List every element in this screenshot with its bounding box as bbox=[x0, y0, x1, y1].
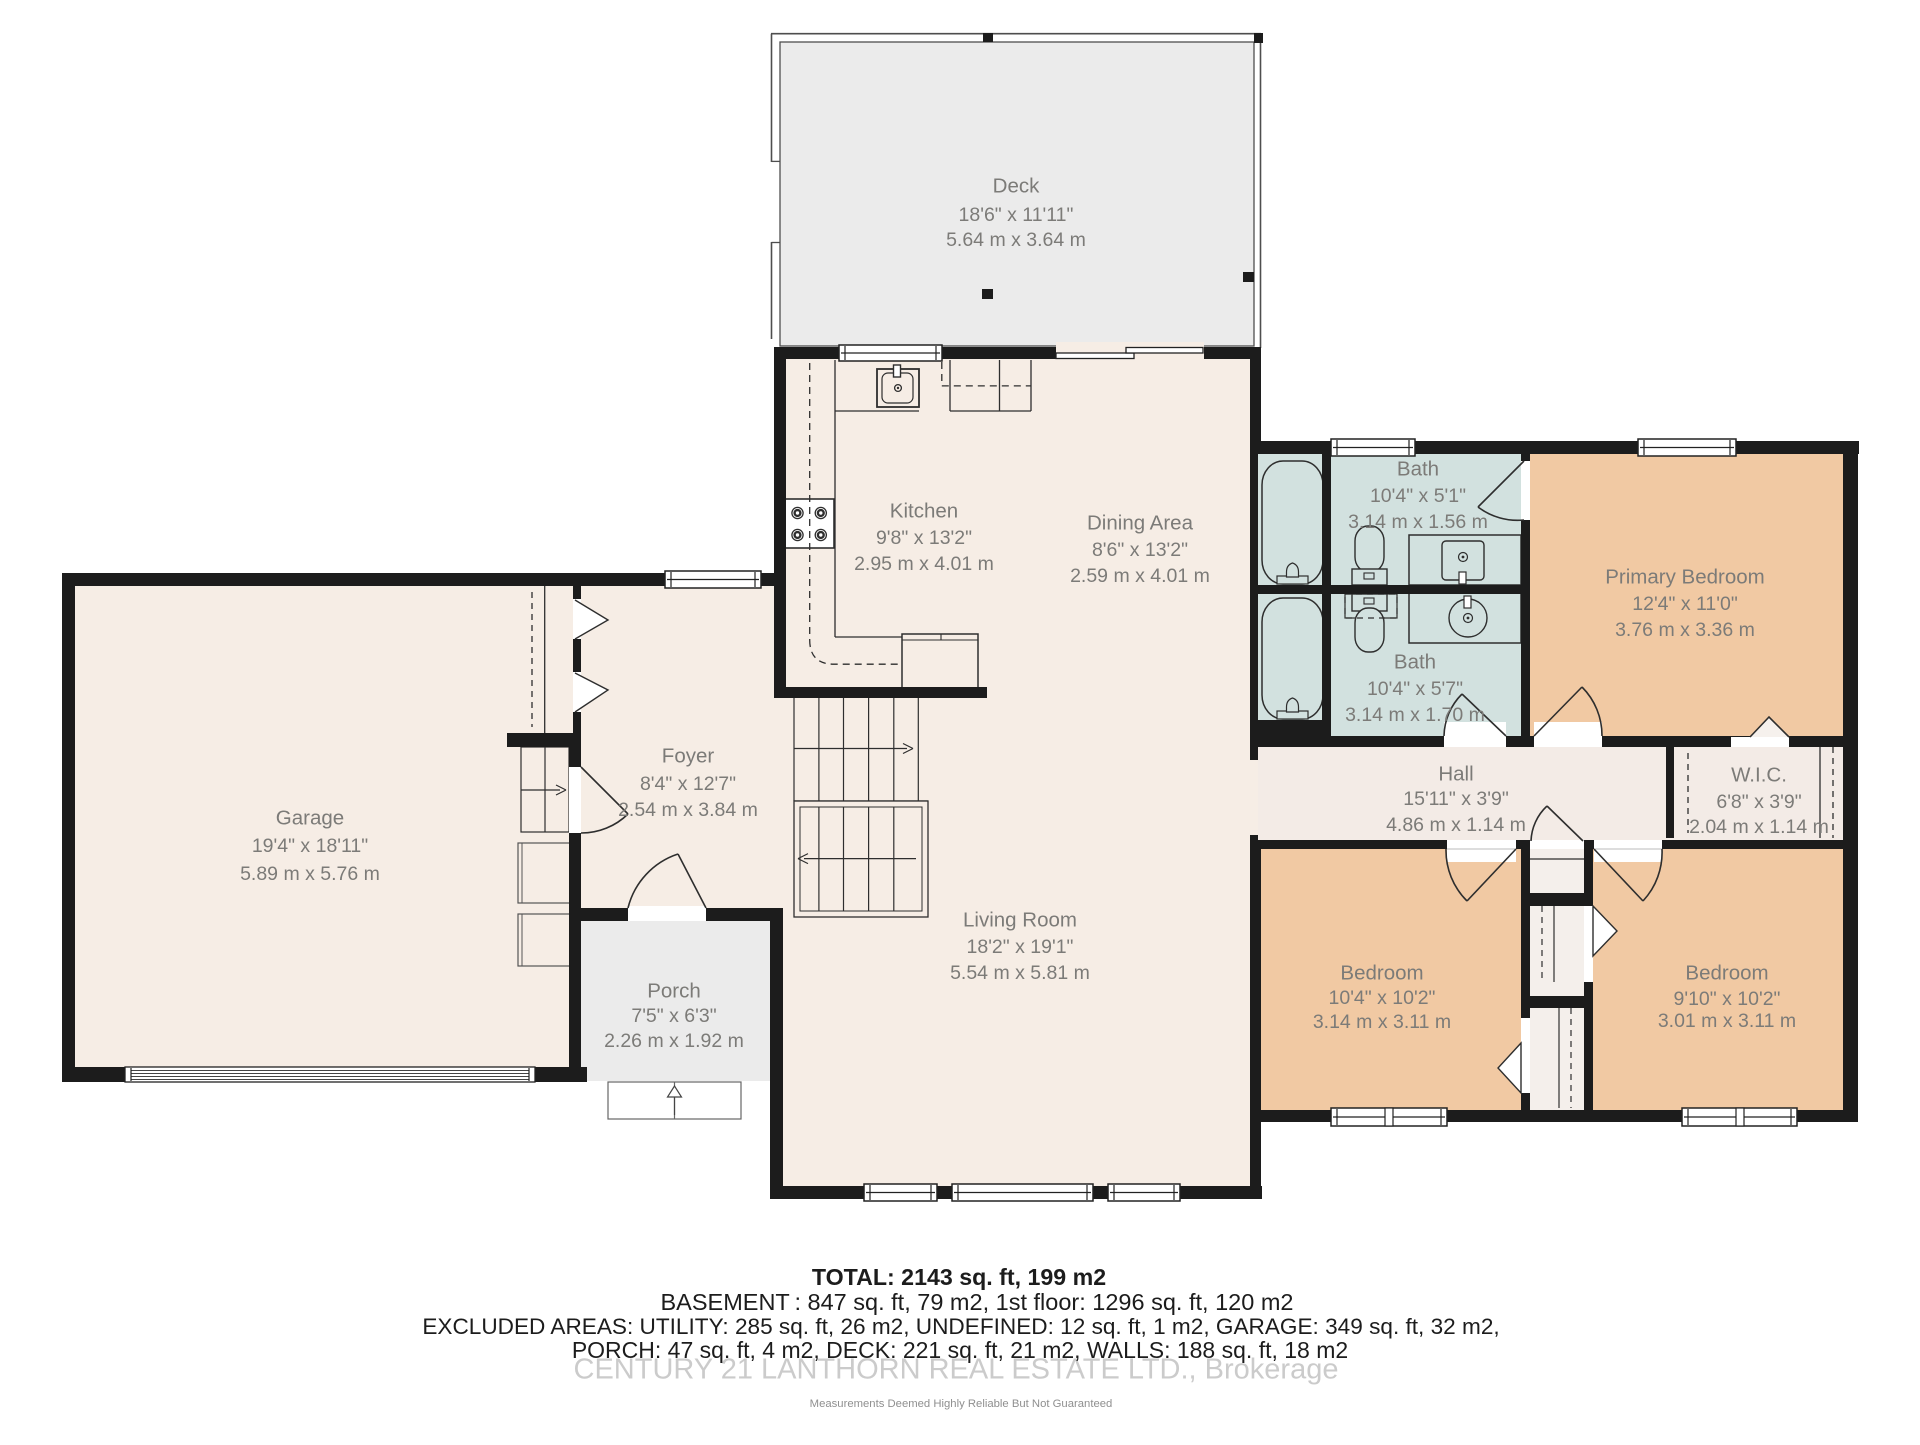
svg-text:2.04 m x 1.14 m: 2.04 m x 1.14 m bbox=[1689, 816, 1829, 838]
svg-text:Bath: Bath bbox=[1394, 650, 1436, 673]
svg-text:18'6" x 11'11": 18'6" x 11'11" bbox=[959, 204, 1074, 226]
svg-text:15'11" x 3'9": 15'11" x 3'9" bbox=[1403, 788, 1509, 810]
svg-text:EXCLUDED AREAS: UTILITY: 285 s: EXCLUDED AREAS: UTILITY: 285 sq. ft, 26 … bbox=[422, 1314, 1499, 1339]
svg-text:BASEMENT : 847 sq. ft, 79 m2,: BASEMENT : 847 sq. ft, 79 m2, 1st floor:… bbox=[661, 1289, 1294, 1315]
svg-text:Foyer: Foyer bbox=[662, 744, 715, 767]
svg-text:3.01 m x 3.11 m: 3.01 m x 3.11 m bbox=[1658, 1010, 1796, 1032]
svg-text:Primary Bedroom: Primary Bedroom bbox=[1605, 565, 1765, 588]
svg-text:TOTAL: 2143 sq. ft, 199 m2: TOTAL: 2143 sq. ft, 199 m2 bbox=[812, 1264, 1106, 1290]
svg-text:18'2" x 19'1": 18'2" x 19'1" bbox=[967, 936, 1074, 958]
svg-text:Living Room: Living Room bbox=[963, 908, 1077, 931]
svg-text:5.64 m x 3.64 m: 5.64 m x 3.64 m bbox=[946, 229, 1086, 251]
svg-text:9'10" x 10'2": 9'10" x 10'2" bbox=[1674, 988, 1781, 1010]
svg-text:2.95 m x 4.01 m: 2.95 m x 4.01 m bbox=[854, 553, 994, 575]
svg-text:Deck: Deck bbox=[993, 174, 1040, 197]
svg-text:Hall: Hall bbox=[1438, 762, 1473, 785]
svg-text:10'4" x 5'7": 10'4" x 5'7" bbox=[1367, 678, 1463, 700]
svg-text:10'4" x 10'2": 10'4" x 10'2" bbox=[1329, 987, 1436, 1009]
svg-text:3.14 m x 3.11 m: 3.14 m x 3.11 m bbox=[1313, 1011, 1451, 1033]
svg-text:2.26 m x 1.92 m: 2.26 m x 1.92 m bbox=[604, 1030, 744, 1052]
svg-text:8'4" x 12'7": 8'4" x 12'7" bbox=[640, 773, 736, 795]
svg-text:2.59 m x 4.01 m: 2.59 m x 4.01 m bbox=[1070, 565, 1210, 587]
svg-text:Bedroom: Bedroom bbox=[1685, 961, 1768, 984]
svg-text:19'4" x 18'11": 19'4" x 18'11" bbox=[252, 835, 368, 857]
svg-text:5.54 m x 5.81 m: 5.54 m x 5.81 m bbox=[950, 962, 1090, 984]
svg-text:4.86 m x 1.14 m: 4.86 m x 1.14 m bbox=[1386, 814, 1526, 836]
svg-text:3.14 m x 1.70 m: 3.14 m x 1.70 m bbox=[1345, 704, 1485, 726]
svg-text:Bath: Bath bbox=[1397, 457, 1439, 480]
svg-text:3.76 m x 3.36 m: 3.76 m x 3.36 m bbox=[1615, 619, 1755, 641]
svg-text:10'4" x 5'1": 10'4" x 5'1" bbox=[1370, 485, 1466, 507]
svg-text:9'8" x 13'2": 9'8" x 13'2" bbox=[876, 527, 972, 549]
svg-text:2.54 m x 3.84 m: 2.54 m x 3.84 m bbox=[618, 799, 758, 821]
svg-text:7'5" x 6'3": 7'5" x 6'3" bbox=[631, 1005, 716, 1027]
svg-text:Garage: Garage bbox=[276, 806, 344, 829]
svg-text:Porch: Porch bbox=[647, 979, 701, 1002]
svg-text:Dining Area: Dining Area bbox=[1087, 511, 1194, 534]
svg-text:PORCH: 47 sq. ft, 4 m2, DECK:: PORCH: 47 sq. ft, 4 m2, DECK: 221 sq. ft… bbox=[572, 1337, 1348, 1363]
svg-text:Measurements Deemed Highly Rel: Measurements Deemed Highly Reliable But … bbox=[810, 1398, 1113, 1410]
svg-text:5.89 m x 5.76 m: 5.89 m x 5.76 m bbox=[240, 863, 380, 885]
svg-text:8'6" x 13'2": 8'6" x 13'2" bbox=[1092, 539, 1188, 561]
svg-text:W.I.C.: W.I.C. bbox=[1731, 763, 1787, 786]
svg-text:Bedroom: Bedroom bbox=[1340, 961, 1423, 984]
svg-text:6'8" x 3'9": 6'8" x 3'9" bbox=[1716, 791, 1801, 813]
svg-text:3.14 m x 1.56 m: 3.14 m x 1.56 m bbox=[1348, 511, 1488, 533]
svg-text:12'4" x 11'0": 12'4" x 11'0" bbox=[1632, 593, 1738, 615]
svg-text:Kitchen: Kitchen bbox=[890, 499, 958, 522]
